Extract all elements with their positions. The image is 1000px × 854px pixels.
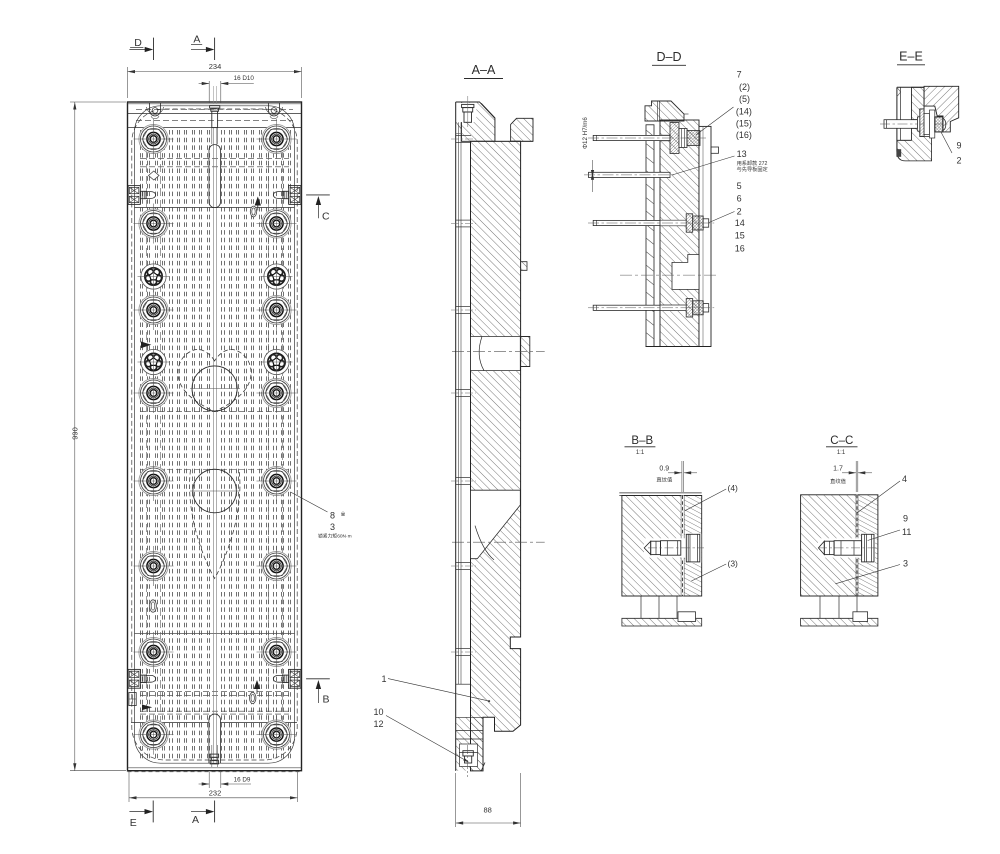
svg-text:(2): (2) (739, 82, 750, 92)
svg-text:88: 88 (484, 806, 492, 815)
svg-text:用系卸款 272: 用系卸款 272 (737, 159, 768, 167)
svg-text:13: 13 (737, 149, 747, 159)
svg-text:2: 2 (737, 206, 742, 216)
svg-text:11: 11 (902, 527, 911, 537)
svg-text:12: 12 (374, 719, 384, 729)
svg-text:16: 16 (735, 243, 745, 253)
svg-text:3: 3 (330, 522, 335, 532)
svg-text:直纹值: 直纹值 (830, 477, 847, 485)
svg-text:5: 5 (737, 181, 742, 191)
svg-text:(3): (3) (728, 558, 739, 568)
svg-text:D–D: D–D (656, 50, 681, 64)
svg-text:9: 9 (903, 514, 908, 524)
svg-text:(16): (16) (736, 130, 752, 140)
svg-text:A: A (193, 34, 200, 46)
svg-text:E: E (130, 817, 137, 829)
svg-text:C: C (322, 211, 330, 223)
svg-text:16 D9: 16 D9 (234, 777, 251, 784)
svg-text:E–E: E–E (899, 50, 923, 64)
svg-text:14: 14 (735, 218, 745, 228)
svg-text:1:1: 1:1 (837, 450, 846, 456)
svg-text:234: 234 (209, 62, 222, 71)
svg-text:B: B (322, 694, 329, 706)
svg-text:B–B: B–B (631, 435, 653, 447)
svg-text:Φ12 H7/m6: Φ12 H7/m6 (582, 117, 589, 149)
svg-text:1:1: 1:1 (636, 450, 645, 456)
svg-text:7: 7 (737, 70, 742, 80)
svg-text:(15): (15) (736, 118, 752, 128)
svg-text:直纹值: 直纹值 (656, 476, 673, 484)
svg-text:C–C: C–C (830, 435, 853, 447)
svg-text:3: 3 (903, 559, 908, 569)
svg-text:0.9: 0.9 (659, 466, 669, 473)
svg-text:990: 990 (71, 427, 80, 440)
svg-text:(14): (14) (736, 107, 752, 117)
svg-text:锁紧力矩60N·m: 锁紧力矩60N·m (318, 533, 352, 540)
svg-text:1.7: 1.7 (833, 466, 843, 473)
svg-text:(5): (5) (739, 94, 750, 104)
svg-text:※: ※ (341, 511, 346, 518)
svg-text:8: 8 (330, 511, 335, 521)
svg-text:9: 9 (957, 141, 962, 151)
svg-text:232: 232 (209, 788, 222, 797)
svg-text:2: 2 (957, 156, 962, 166)
svg-text:16 D10: 16 D10 (234, 75, 255, 82)
svg-text:1: 1 (382, 674, 387, 684)
svg-text:A: A (192, 814, 199, 826)
svg-text:4: 4 (902, 474, 907, 484)
svg-text:与先导板固定: 与先导板固定 (737, 165, 768, 173)
svg-text:(4): (4) (728, 483, 739, 493)
svg-text:15: 15 (735, 230, 745, 240)
svg-text:6: 6 (737, 193, 742, 203)
svg-text:10: 10 (374, 707, 384, 717)
svg-text:A–A: A–A (472, 63, 496, 77)
